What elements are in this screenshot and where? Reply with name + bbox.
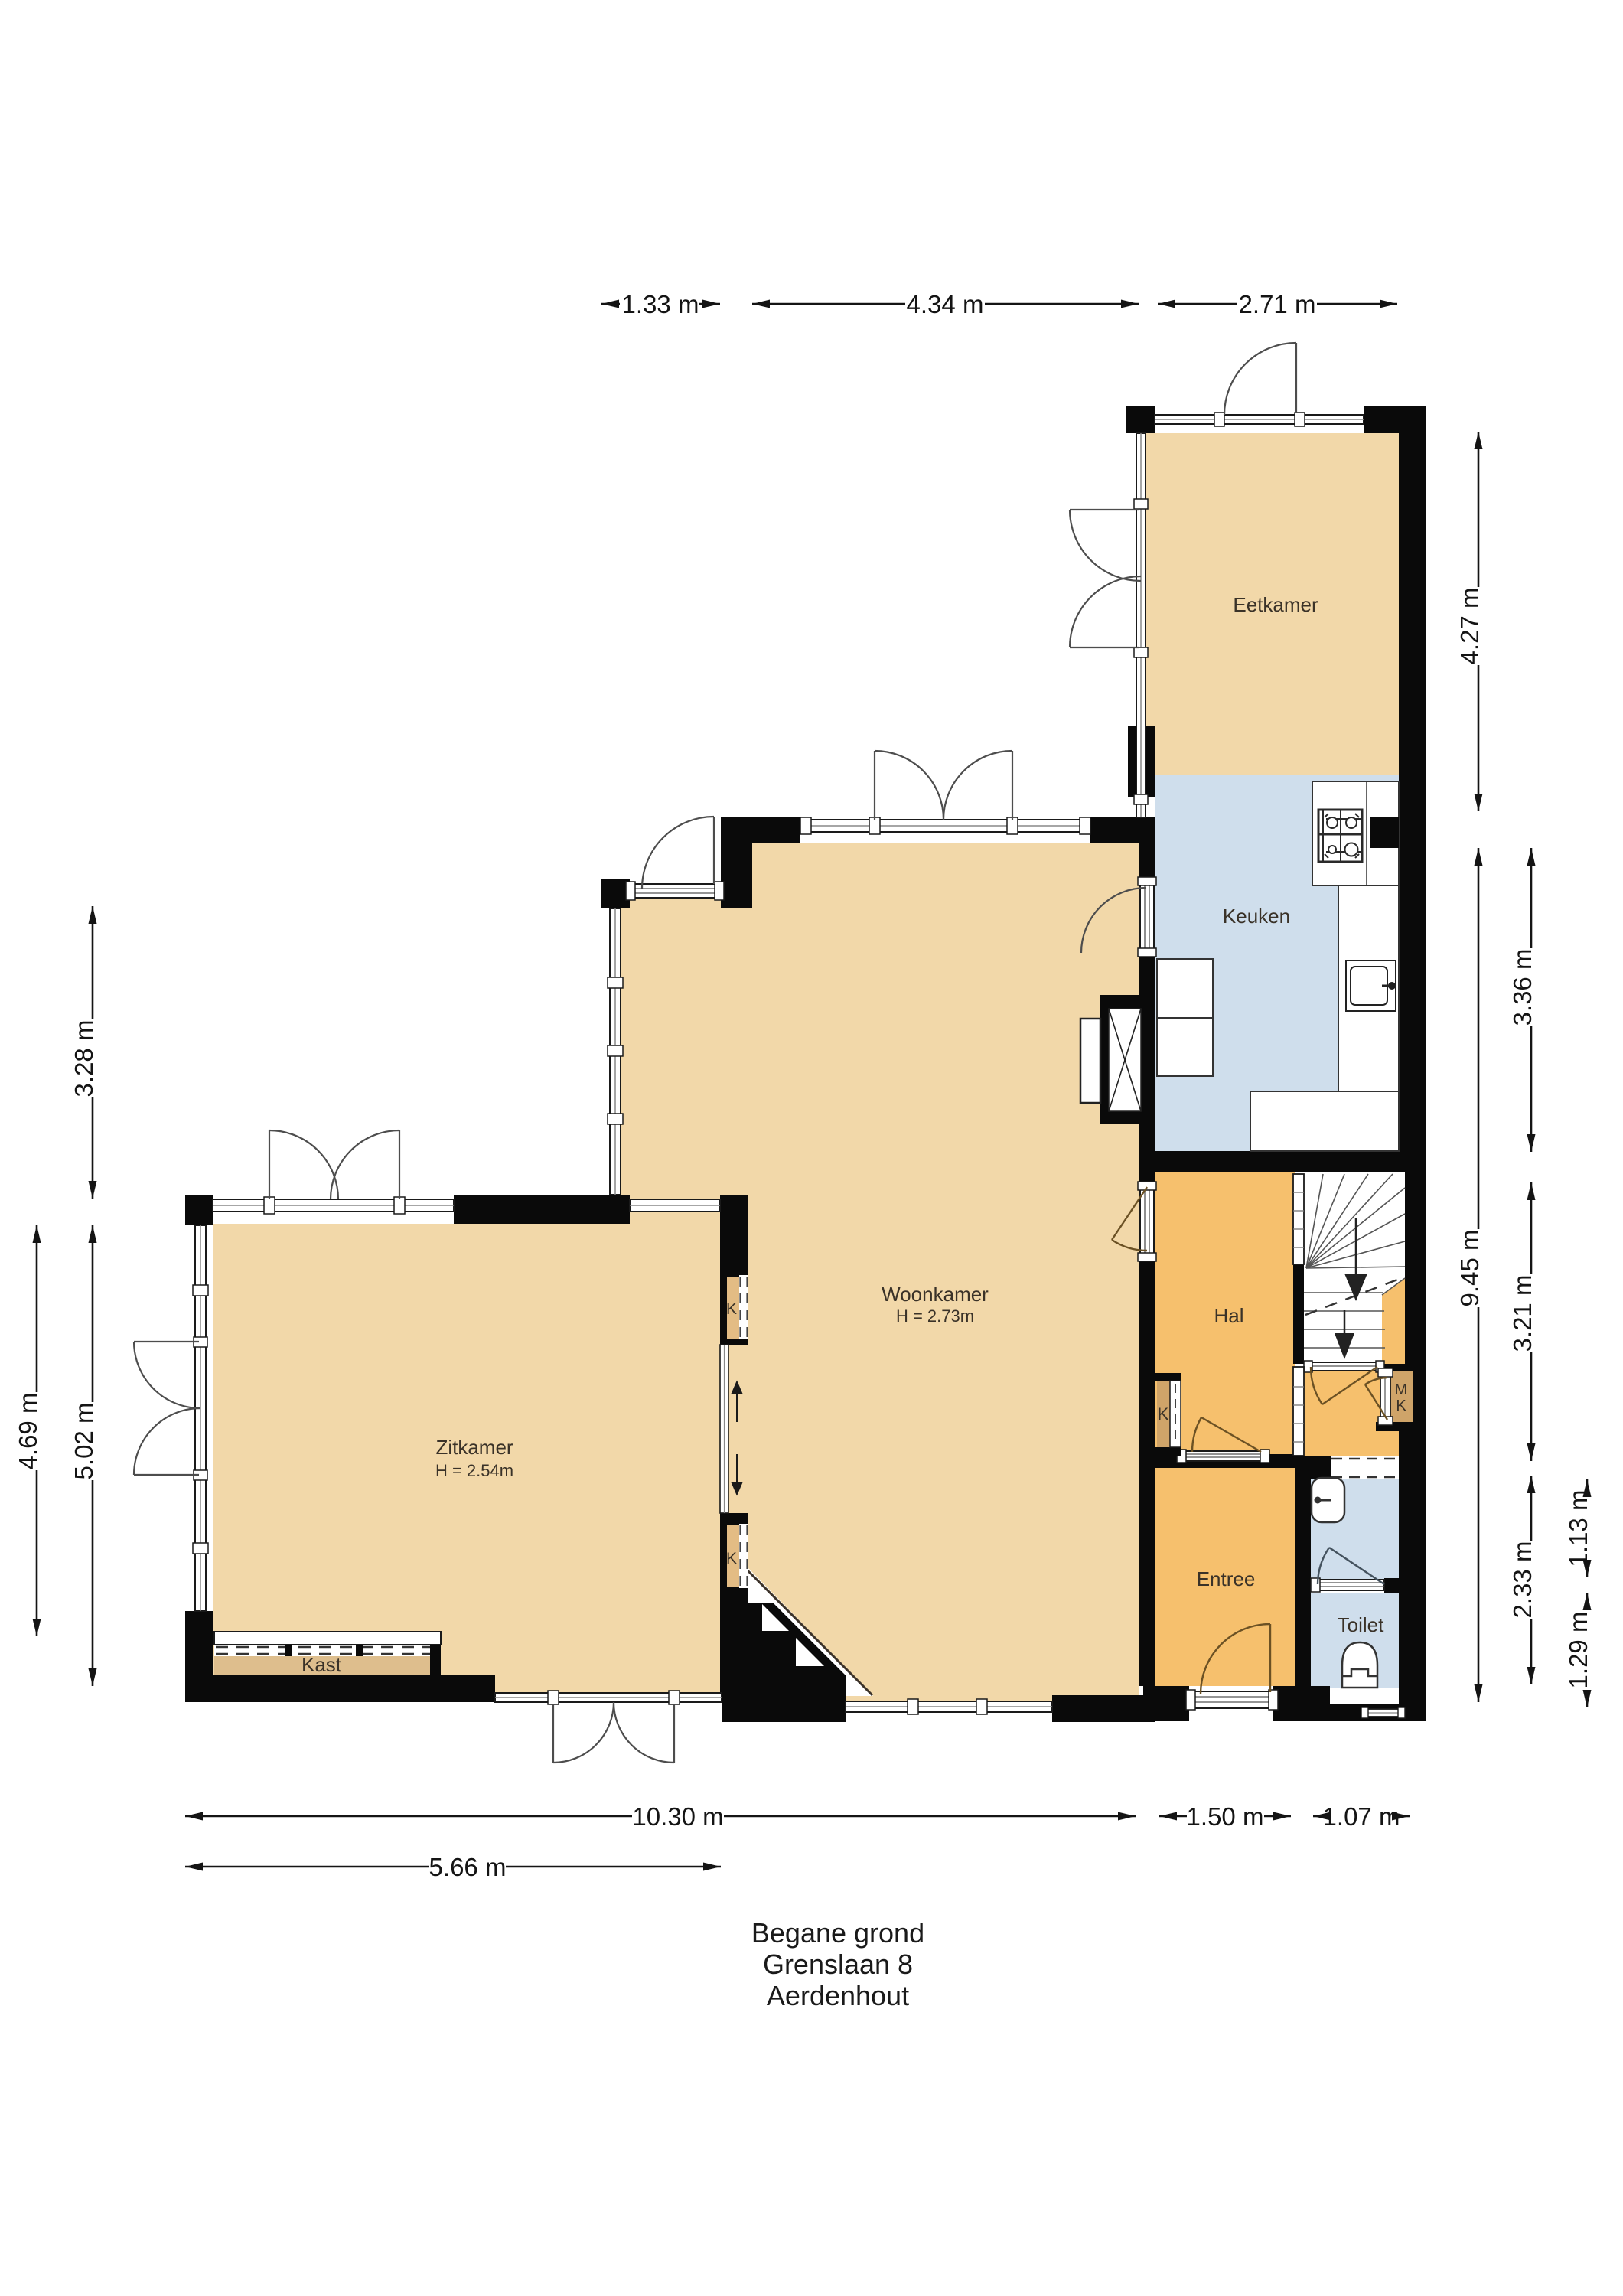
svg-text:2.71 m: 2.71 m bbox=[1239, 290, 1316, 318]
svg-text:K: K bbox=[1158, 1404, 1169, 1424]
svg-text:Entree: Entree bbox=[1197, 1567, 1256, 1590]
svg-text:Hal: Hal bbox=[1214, 1304, 1243, 1327]
svg-text:3.28 m: 3.28 m bbox=[70, 1020, 98, 1097]
svg-text:3.21 m: 3.21 m bbox=[1508, 1275, 1537, 1352]
svg-text:4.27 m: 4.27 m bbox=[1455, 588, 1484, 665]
svg-text:5.66 m: 5.66 m bbox=[429, 1853, 507, 1881]
svg-text:K: K bbox=[1396, 1397, 1406, 1414]
svg-text:H = 2.54m: H = 2.54m bbox=[435, 1461, 513, 1480]
svg-text:Kast: Kast bbox=[301, 1653, 342, 1676]
svg-text:3.36 m: 3.36 m bbox=[1508, 949, 1537, 1026]
svg-text:Zitkamer: Zitkamer bbox=[435, 1436, 513, 1459]
svg-text:Toilet: Toilet bbox=[1338, 1613, 1384, 1636]
svg-text:Begane grond: Begane grond bbox=[751, 1917, 924, 1949]
svg-text:Grenslaan 8: Grenslaan 8 bbox=[763, 1949, 913, 1980]
svg-text:M: M bbox=[1395, 1381, 1408, 1398]
svg-text:Woonkamer: Woonkamer bbox=[882, 1283, 989, 1306]
svg-text:10.30 m: 10.30 m bbox=[632, 1802, 723, 1831]
svg-text:1.29 m: 1.29 m bbox=[1564, 1612, 1592, 1689]
svg-text:K: K bbox=[726, 1300, 737, 1318]
svg-text:9.45 m: 9.45 m bbox=[1455, 1230, 1484, 1307]
svg-text:1.07 m: 1.07 m bbox=[1323, 1802, 1400, 1831]
svg-text:5.02 m: 5.02 m bbox=[70, 1403, 98, 1480]
svg-text:4.34 m: 4.34 m bbox=[907, 290, 984, 318]
svg-text:2.33 m: 2.33 m bbox=[1508, 1541, 1537, 1619]
svg-text:1.50 m: 1.50 m bbox=[1187, 1802, 1264, 1831]
svg-text:1.13 m: 1.13 m bbox=[1564, 1490, 1592, 1567]
svg-text:Aerdenhout: Aerdenhout bbox=[767, 1980, 909, 2011]
svg-text:1.33 m: 1.33 m bbox=[622, 290, 699, 318]
svg-text:Eetkamer: Eetkamer bbox=[1233, 593, 1318, 616]
svg-text:4.69 m: 4.69 m bbox=[14, 1393, 42, 1470]
svg-text:H = 2.73m: H = 2.73m bbox=[896, 1306, 974, 1326]
svg-text:Keuken: Keuken bbox=[1223, 905, 1290, 928]
svg-text:K: K bbox=[726, 1550, 737, 1567]
